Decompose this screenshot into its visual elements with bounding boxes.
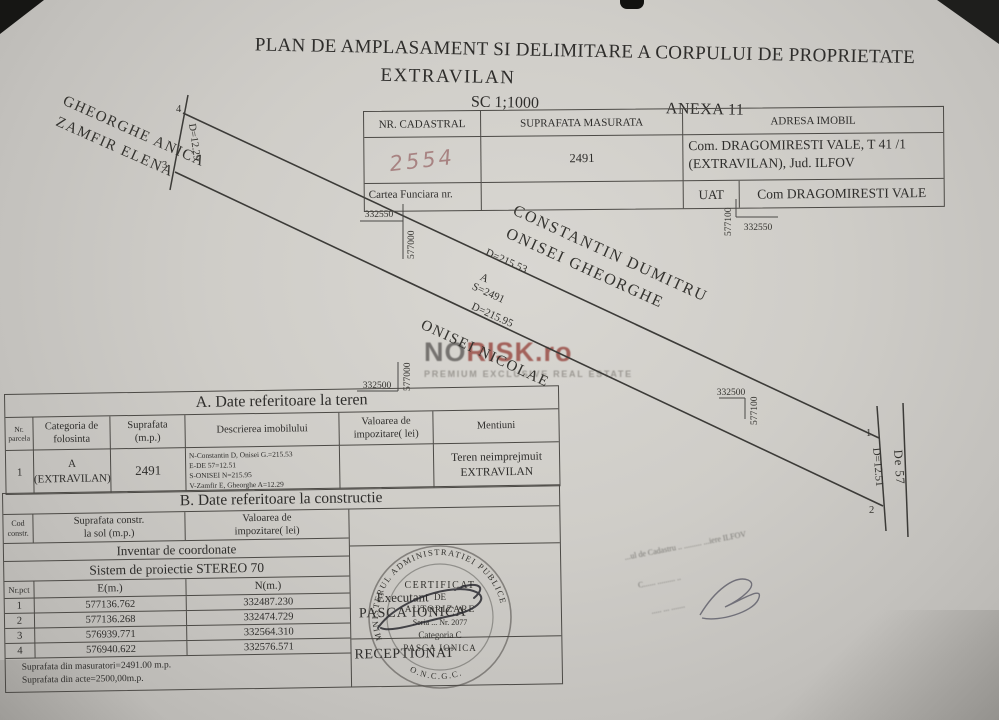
grid-cross-top-left: [360, 204, 403, 259]
scanned-cadastral-plan: NORISK.ro PREMIUM EXCLUSIVE REAL ESTATE …: [0, 0, 999, 720]
faint-office-stamp: ...ul de Cadastru .. ......... ...iere I…: [624, 529, 758, 618]
executant-label: Executant: [377, 589, 429, 606]
watermark-logo: NORISK.ro: [424, 337, 633, 368]
dim-west-label: D=12.29: [186, 123, 202, 161]
grid-br-x-label: 332500: [717, 388, 746, 398]
point-label-2: 2: [869, 505, 874, 516]
coord-header-e: E(m.): [34, 579, 186, 597]
uat-value: Com DRAGOMIRESTI VALE: [740, 179, 944, 208]
scan-artifact-top-blob: [620, 0, 644, 9]
address-line2: (EXTRAVILAN), Jud. ILFOV: [688, 153, 938, 173]
coord-header-nrpct: Nr.pct: [4, 582, 34, 598]
neighbor-n-line2: ONISEI GHEORGHE: [503, 225, 666, 312]
watermark: NORISK.ro PREMIUM EXCLUSIVE REAL ESTATE: [424, 337, 633, 379]
grid-cross-bottom-right: [719, 398, 745, 419]
faint-stamp-line3: ..... ... .......: [650, 601, 685, 616]
mentiuni-line1: Teren neimprejmuit: [451, 449, 542, 465]
header-valoare-b-line2: impozitare( lei): [235, 524, 300, 538]
uat-label: UAT: [684, 181, 740, 208]
col-header-suprafata-masurata: SUPRAFATA MASURATA: [481, 109, 683, 137]
cartea-funciara-value-empty: [482, 181, 684, 210]
dim-north-label: D=215.53: [484, 247, 530, 277]
coord-4-e: 576940.622: [35, 641, 187, 657]
row-valoare-empty: [340, 444, 435, 488]
coord-3-n: 332564.310: [187, 624, 350, 641]
address-line1: Com. DRAGOMIRESTI VALE, T 41 /1: [688, 135, 938, 155]
header-descriere: Descrierea imobilului: [185, 413, 339, 448]
header-suprafata-line2: (m.p.): [135, 432, 161, 446]
neighbor-n-line1: CONSTANTIN DUMITRU: [510, 202, 710, 305]
grid-cross-bottom-left: [357, 362, 398, 391]
header-valoare-b-line1: Valoarea de: [242, 511, 291, 525]
scan-shadow-bottom-left: [0, 660, 180, 720]
point-label-1: 1: [866, 428, 871, 439]
row-suprafata: 2491: [111, 448, 187, 492]
parcel-letter-label: A: [478, 271, 490, 285]
coord-2-n: 332474.729: [187, 609, 350, 626]
coord-4-nr: 4: [5, 643, 35, 657]
header-valoare-line2: impozitare( lei): [354, 427, 419, 441]
faint-stamp-line1: ...ul de Cadastru .. ......... ...iere I…: [624, 529, 747, 561]
dim-south-label: D=215.95: [470, 301, 516, 331]
coord-2-e: 577136.268: [35, 611, 187, 627]
measured-area-value: 2491: [481, 135, 683, 183]
table-a-teren: A. Date referitoare la teren Nr. parcela…: [4, 385, 561, 495]
coord-1-nr: 1: [5, 599, 35, 613]
header-nr-line2: parcela: [8, 434, 30, 443]
header-nr-line1: Nr.: [14, 425, 24, 434]
row-categoria-line2: (EXTRAVILAN): [34, 471, 111, 487]
scan-corner-artifact-top-right: [927, 0, 999, 44]
neighbor-nw-line2: ZAMFIR ELENA: [53, 114, 176, 181]
neighbor-nw-line1: GHEORGHE ANICA: [60, 93, 207, 170]
watermark-logo-ro: .ro: [535, 337, 573, 367]
header-valoare-line1: Valoarea de: [361, 414, 410, 428]
executant-cell: Executant PASCA IONICA: [350, 543, 561, 639]
coord-1-e: 577136.762: [35, 596, 187, 612]
dim-east-label: D=12.51: [870, 447, 885, 487]
scan-corner-artifact-top-left: [0, 0, 44, 34]
row-categoria-line1: A: [68, 457, 76, 471]
parcel-edge-west: [170, 95, 188, 190]
row-nr-parcela: 1: [6, 451, 35, 494]
coord-3-nr: 3: [5, 628, 35, 642]
road-de57-label: De 57: [891, 449, 907, 485]
header-cod-line2: constr.: [8, 529, 29, 540]
grid-tr-y-label: 577100: [724, 207, 734, 236]
header-mentiuni: Mentiuni: [433, 409, 559, 444]
parcel-area-label: S=2491: [470, 281, 506, 306]
road-de57-line: [903, 403, 908, 537]
property-id-table: NR. CADASTRAL SUPRAFATA MASURATA ADRESA …: [363, 106, 945, 212]
coord-2-nr: 2: [5, 613, 35, 627]
cadastral-number-handwritten: 2554: [389, 144, 457, 175]
watermark-tagline: PREMIUM EXCLUSIVE REAL ESTATE: [424, 369, 633, 379]
title-block: PLAN DE AMPLASAMENT SI DELIMITARE A CORP…: [235, 34, 935, 69]
col-header-nr-cadastral: NR. CADASTRAL: [364, 111, 481, 138]
plan-title-line1: PLAN DE AMPLASAMENT SI DELIMITARE A CORP…: [235, 34, 935, 69]
header-supr-constr-line2: la sol (m.p.): [84, 527, 135, 541]
header-suprafata-line1: Suprafata: [127, 418, 167, 432]
header-categoria: Categoria de folosinta: [33, 416, 111, 450]
point-label-4: 4: [176, 104, 182, 115]
header-supr-constr-line1: Suprafata constr.: [74, 514, 145, 528]
grid-tl-y-label: 577000: [407, 230, 417, 259]
grid-br-y-label: 577100: [750, 396, 760, 425]
parcel-edge-east: [877, 406, 886, 531]
scan-shadow-bottom-right: [739, 610, 999, 720]
coord-4-n: 332576.571: [187, 639, 350, 656]
cartea-funciara-label: Cartea Funciara nr.: [365, 183, 482, 211]
watermark-logo-no: NO: [424, 337, 467, 367]
point-label-3: 3: [162, 160, 167, 171]
receptionat-cell: RECEPTIONAT: [351, 636, 562, 676]
receptionat-label: RECEPTIONAT: [354, 646, 454, 664]
faint-stamp-line2: C...... ......... ..: [637, 573, 681, 590]
plan-title-line2: EXTRAVILAN: [380, 65, 515, 90]
watermark-logo-risk: RISK: [467, 337, 536, 367]
grid-tr-x-label: 332550: [744, 223, 773, 233]
coord-header-n: N(m.): [186, 577, 349, 596]
header-cod-line1: Cod: [11, 518, 25, 529]
coord-1-n: 332487.230: [187, 594, 350, 611]
mentiuni-line2: EXTRAVILAN: [460, 464, 533, 480]
coord-3-e: 576939.771: [35, 626, 187, 642]
right-column-empty-cell: [349, 506, 560, 546]
executant-name: PASCA IONICA: [359, 605, 467, 623]
col-header-adresa-imobil: ADRESA IMOBIL: [683, 107, 943, 135]
